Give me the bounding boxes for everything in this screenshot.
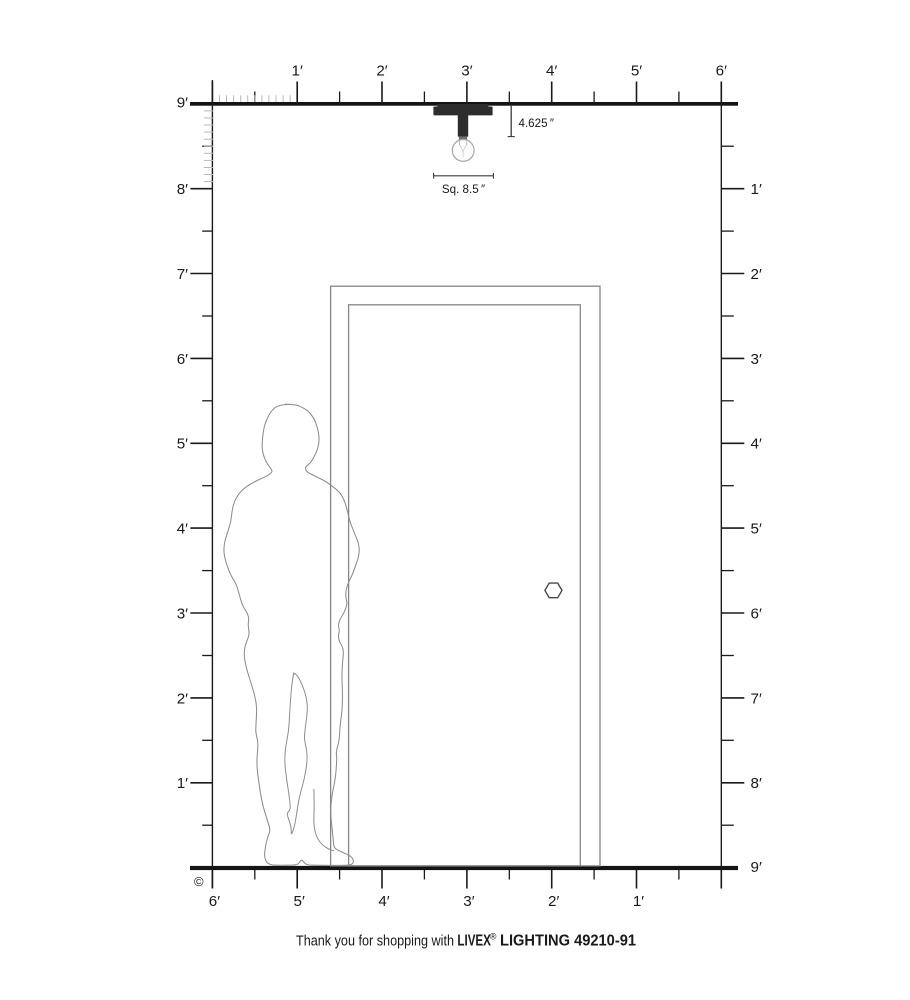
svg-text:7′: 7′ — [177, 266, 188, 283]
svg-text:2′: 2′ — [177, 690, 188, 707]
svg-text:1′: 1′ — [177, 775, 188, 792]
svg-text:©: © — [194, 874, 204, 889]
svg-text:3′: 3′ — [177, 605, 188, 622]
svg-text:2′: 2′ — [548, 893, 559, 910]
svg-text:3′: 3′ — [751, 351, 762, 368]
svg-text:8′: 8′ — [751, 775, 762, 792]
svg-text:Thank you for shopping with: Thank you for shopping with — [296, 933, 454, 950]
svg-text:4′: 4′ — [177, 521, 188, 538]
svg-text:4′: 4′ — [378, 893, 389, 910]
svg-text:5′: 5′ — [631, 63, 642, 80]
svg-text:8′: 8′ — [177, 181, 188, 198]
svg-text:4′: 4′ — [751, 436, 762, 453]
svg-text:1′: 1′ — [633, 893, 644, 910]
svg-text:2′: 2′ — [751, 266, 762, 283]
svg-text:7′: 7′ — [751, 690, 762, 707]
svg-text:4′: 4′ — [546, 63, 557, 80]
svg-text:6′: 6′ — [751, 605, 762, 622]
svg-text:1′: 1′ — [292, 63, 303, 80]
svg-text:2′: 2′ — [376, 63, 387, 80]
svg-text:6′: 6′ — [177, 351, 188, 368]
svg-text:LIGHTING 49210-91: LIGHTING 49210-91 — [500, 933, 636, 950]
svg-text:3′: 3′ — [461, 63, 472, 80]
svg-text:1′: 1′ — [751, 181, 762, 198]
svg-text:®: ® — [490, 932, 497, 942]
svg-text:9′: 9′ — [177, 94, 188, 111]
svg-text:5′: 5′ — [751, 521, 762, 538]
svg-text:LIVEX: LIVEX — [457, 933, 491, 950]
svg-text:4.625 ″: 4.625 ″ — [519, 117, 554, 130]
svg-text:9′: 9′ — [751, 859, 762, 876]
svg-text:5′: 5′ — [294, 893, 305, 910]
svg-text:3′: 3′ — [463, 893, 474, 910]
svg-text:6′: 6′ — [209, 893, 220, 910]
svg-text:Sq. 8.5 ″: Sq. 8.5 ″ — [442, 183, 485, 196]
svg-text:5′: 5′ — [177, 436, 188, 453]
svg-text:6′: 6′ — [716, 63, 727, 80]
